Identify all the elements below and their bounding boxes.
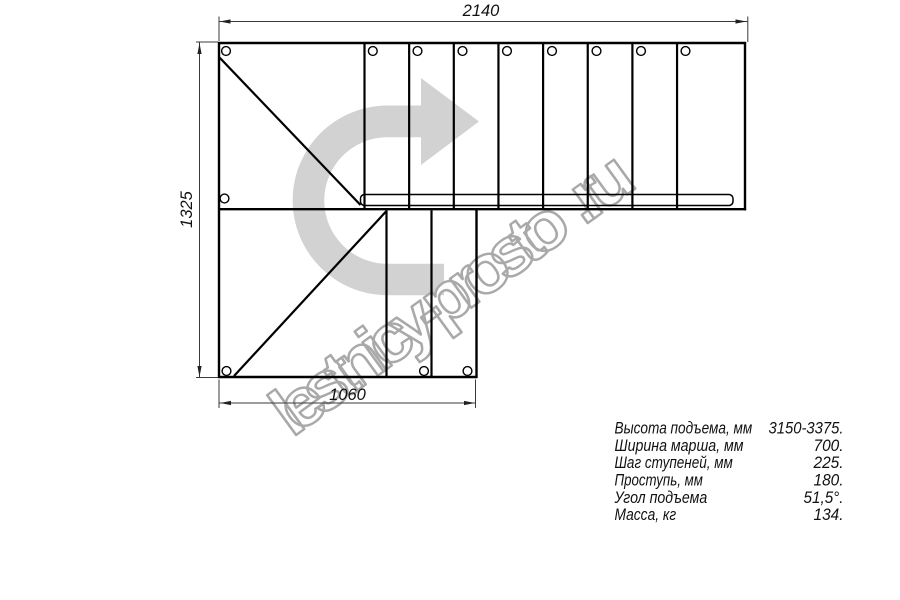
svg-text:180.: 180. <box>814 471 844 490</box>
svg-text:51,5°.: 51,5°. <box>804 488 844 507</box>
svg-text:1060: 1060 <box>329 386 367 404</box>
svg-text:1325: 1325 <box>178 190 196 228</box>
svg-text:Высота подъема, мм: Высота подъема, мм <box>615 419 753 438</box>
svg-text:Проступь, мм: Проступь, мм <box>615 471 704 490</box>
svg-text:Шаг ступеней, мм: Шаг ступеней, мм <box>615 453 734 472</box>
svg-text:Угол подъема: Угол подъема <box>614 488 708 507</box>
svg-text:700.: 700. <box>814 436 844 455</box>
svg-text:3150-3375.: 3150-3375. <box>769 419 844 438</box>
svg-text:2140: 2140 <box>462 2 501 20</box>
svg-text:Ширина марша, мм: Ширина марша, мм <box>615 436 744 455</box>
svg-text:Масса, кг: Масса, кг <box>615 505 677 524</box>
svg-text:134.: 134. <box>814 505 844 524</box>
svg-text:225.: 225. <box>813 453 844 472</box>
